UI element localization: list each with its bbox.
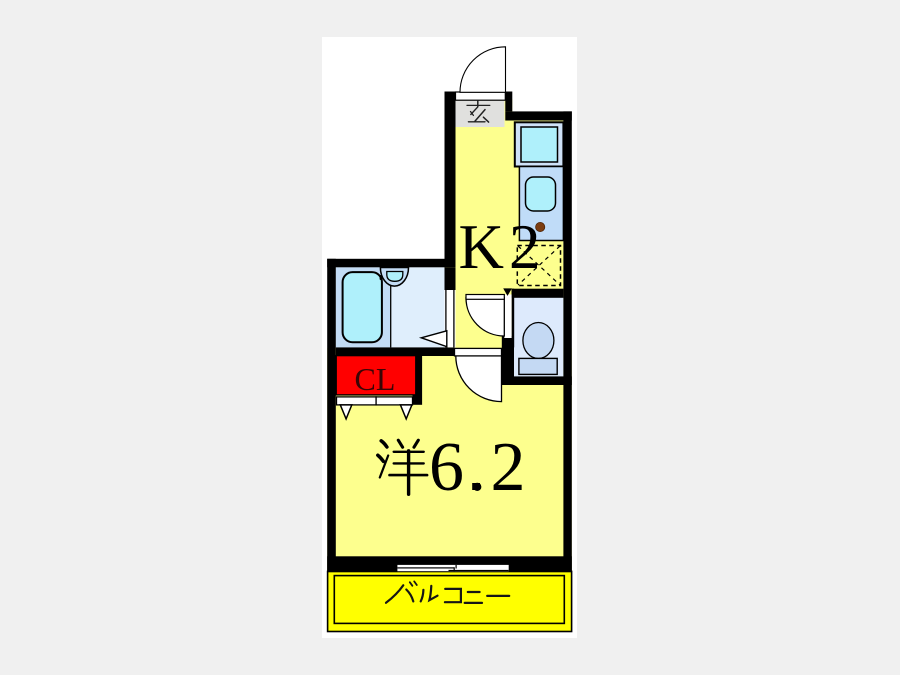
- svg-text:CL: CL: [355, 361, 396, 397]
- svg-text:6.2: 6.2: [429, 429, 530, 506]
- svg-text:K2: K2: [459, 212, 546, 282]
